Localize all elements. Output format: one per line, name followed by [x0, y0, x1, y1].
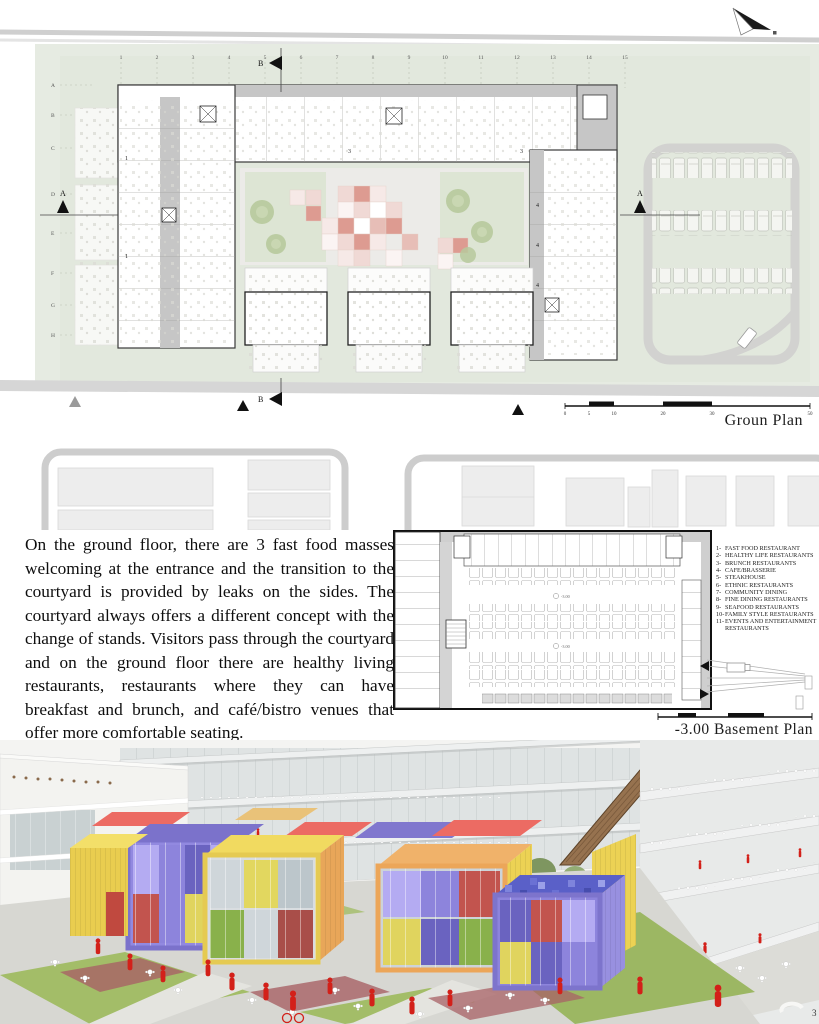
svg-text:15: 15: [622, 55, 628, 61]
svg-text:4: 4: [536, 203, 539, 209]
svg-text:H: H: [51, 333, 55, 339]
legend-item: 1-FAST FOOD RESTAURANT: [716, 545, 817, 552]
svg-text:30: 30: [710, 412, 716, 417]
svg-text:5: 5: [264, 55, 267, 61]
svg-text:B: B: [258, 59, 263, 68]
courtyard-render: 3: [0, 740, 819, 1024]
svg-text:B: B: [51, 113, 55, 119]
svg-text:4: 4: [536, 243, 539, 249]
svg-text:3: 3: [520, 149, 523, 155]
svg-text:20: 20: [661, 412, 667, 417]
svg-text:1: 1: [125, 156, 128, 162]
legend-item: 3-BRUNCH RESTAURANTS: [716, 560, 817, 567]
legend-item: 9-SEAFOOD RESTAURANTS: [716, 604, 817, 611]
svg-text:C: C: [51, 146, 55, 152]
stand-pavilions: [245, 268, 533, 372]
north-arrow-icon: [733, 8, 777, 35]
svg-text:5: 5: [588, 412, 591, 417]
entrance-marker-icon: [512, 404, 524, 415]
svg-text:50: 50: [808, 412, 814, 417]
svg-text:11: 11: [478, 55, 484, 61]
section-arrow-icon: [269, 392, 282, 406]
presentation-board: 1 2 3 4 5 6 7 8 9 10 11 12 13 14 15 A B …: [0, 0, 819, 1024]
building-right-wing: [530, 150, 617, 360]
svg-text:4: 4: [536, 283, 539, 289]
truck-icon: [727, 663, 745, 672]
svg-text:8: 8: [372, 55, 375, 61]
svg-text:A: A: [60, 189, 66, 198]
legend-item: 4-CAFE/BRASSERIE: [716, 567, 817, 574]
description-paragraph: On the ground floor, there are 3 fast fo…: [25, 533, 394, 745]
svg-text:B: B: [258, 395, 263, 404]
svg-text:0: 0: [564, 412, 567, 417]
svg-text:F: F: [51, 271, 54, 277]
cube-blue-right: [495, 875, 625, 988]
svg-text:D: D: [51, 192, 55, 198]
svg-text:6: 6: [300, 55, 303, 61]
building-left-wing: [118, 85, 235, 348]
page-number: 3: [812, 1008, 817, 1018]
legend-item: 7-COMMUNITY DINING: [716, 589, 817, 596]
svg-text:-3.00: -3.00: [561, 644, 570, 649]
svg-text:3: 3: [192, 55, 195, 61]
svg-text:A: A: [637, 189, 643, 198]
context-blocks: [45, 452, 819, 530]
svg-text:3: 3: [348, 149, 351, 155]
courtyard: [240, 168, 528, 269]
ramp-arrow-icon: [700, 689, 709, 699]
svg-text:13: 13: [550, 55, 556, 61]
svg-text:12: 12: [514, 55, 520, 61]
legend-item: 6-ETHNIC RESTAURANTS: [716, 582, 817, 589]
svg-text:1: 1: [120, 55, 123, 61]
legend-item: 11-EVENTS AND ENTERTAINMENT RESTAURANTS: [716, 618, 817, 633]
legend-item: 5-STEAKHOUSE: [716, 574, 817, 581]
svg-text:14: 14: [586, 55, 592, 61]
svg-text:9: 9: [408, 55, 411, 61]
basement-plan-drawing: -3.00 -3.00: [390, 528, 715, 713]
parking-ramp-drawing: [693, 652, 819, 716]
outdoor-seating-west: [75, 108, 118, 345]
basement-plan-title: -3.00 Basement Plan: [675, 721, 813, 739]
legend-item: 2-HEALTHY LIFE RESTAURANTS: [716, 552, 817, 559]
svg-text:A: A: [51, 83, 55, 89]
svg-text:G: G: [51, 303, 55, 309]
legend-item: 8-FINE DINING RESTAURANTS: [716, 596, 817, 603]
ground-plan-drawing: 1 2 3 4 5 6 7 8 9 10 11 12 13 14 15 A B …: [0, 0, 819, 530]
entrance-marker-icon: [237, 400, 249, 411]
svg-text:1: 1: [125, 254, 128, 260]
ramp-arrow-icon: [700, 661, 709, 671]
svg-text:2: 2: [156, 55, 159, 61]
ground-plan-title: Groun Plan: [725, 412, 803, 430]
car-icon: [796, 696, 803, 709]
svg-text:-3.00: -3.00: [561, 594, 570, 599]
svg-text:7: 7: [336, 55, 339, 61]
svg-text:10: 10: [442, 55, 448, 61]
cube-yellow-center: [205, 835, 344, 962]
car-icon: [805, 676, 812, 689]
legend-item: 10-FAMILY STYLE RESTAURANTS: [716, 611, 817, 618]
svg-text:10: 10: [612, 412, 618, 417]
basement-legend: 1-FAST FOOD RESTAURANT 2-HEALTHY LIFE RE…: [716, 545, 817, 633]
svg-text:4: 4: [228, 55, 231, 61]
entrance-marker-gray-icon: [69, 396, 81, 407]
